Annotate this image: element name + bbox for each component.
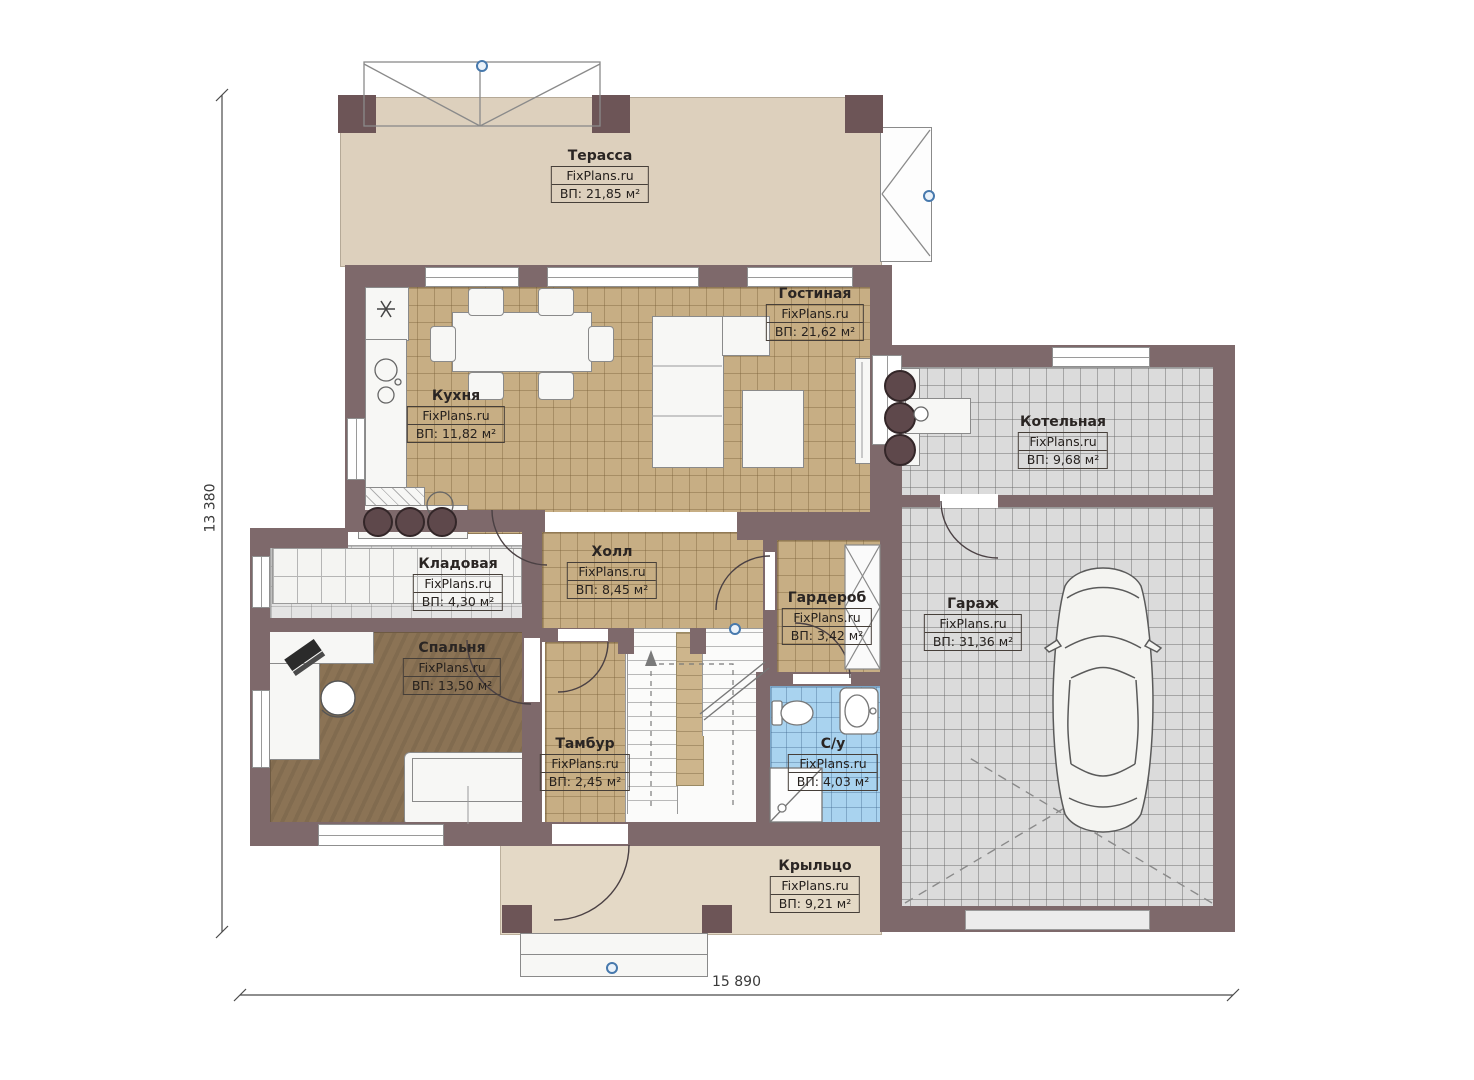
wall xyxy=(1213,367,1235,930)
window xyxy=(547,267,699,287)
room-area: ВП: 8,45 м² xyxy=(568,581,656,598)
dining-chair xyxy=(468,288,504,316)
garage-floor xyxy=(892,507,1215,908)
sofa xyxy=(652,316,724,468)
dimension-width: 15 890 xyxy=(712,974,761,990)
room-label-wardrobe: Гардероб FixPlans.ru ВП: 3,42 м² xyxy=(782,590,872,645)
room-label-terrace: Терасса FixPlans.ru ВП: 21,85 м² xyxy=(551,148,649,203)
room-brand: FixPlans.ru xyxy=(552,167,648,185)
room-area: ВП: 4,03 м² xyxy=(789,773,877,790)
dining-chair xyxy=(538,288,574,316)
dining-chair xyxy=(430,326,456,362)
room-info-box: FixPlans.ru ВП: 2,45 м² xyxy=(540,754,630,791)
room-brand: FixPlans.ru xyxy=(767,305,863,323)
wall xyxy=(880,532,902,906)
sofa-arm xyxy=(722,316,770,356)
room-label-kitchen: Кухня FixPlans.ru ВП: 11,82 м² xyxy=(407,388,505,443)
axis-marker xyxy=(729,623,741,635)
room-area: ВП: 2,45 м² xyxy=(541,773,629,790)
fridge xyxy=(365,287,409,341)
room-area: ВП: 21,85 м² xyxy=(552,185,648,202)
room-name: Спальня xyxy=(403,640,501,656)
dimension-height: 13 380 xyxy=(203,484,219,533)
room-name: Холл xyxy=(567,544,657,560)
room-label-storage: Кладовая FixPlans.ru ВП: 4,30 м² xyxy=(413,556,503,611)
room-area: ВП: 3,42 м² xyxy=(783,627,871,644)
wall-stub xyxy=(618,628,634,654)
room-area: ВП: 9,21 м² xyxy=(771,895,859,912)
room-info-box: FixPlans.ru ВП: 31,36 м² xyxy=(924,614,1022,651)
room-label-hall: Холл FixPlans.ru ВП: 8,45 м² xyxy=(567,544,657,599)
room-info-box: FixPlans.ru ВП: 13,50 м² xyxy=(403,658,501,695)
coffee-table xyxy=(742,390,804,468)
wall xyxy=(345,287,365,532)
desk-return xyxy=(262,628,374,664)
room-name: Терасса xyxy=(551,148,649,164)
window xyxy=(425,267,519,287)
door-gap xyxy=(558,629,608,641)
room-area: ВП: 21,62 м² xyxy=(767,323,863,340)
wall xyxy=(345,510,545,532)
wall xyxy=(870,287,892,345)
room-label-porch: Крыльцо FixPlans.ru ВП: 9,21 м² xyxy=(770,858,860,913)
room-info-box: FixPlans.ru ВП: 21,85 м² xyxy=(551,166,649,203)
room-label-vestibule: Тамбур FixPlans.ru ВП: 2,45 м² xyxy=(540,736,630,791)
room-info-box: FixPlans.ru ВП: 9,68 м² xyxy=(1018,432,1108,469)
garage-door xyxy=(965,910,1150,930)
room-name: Кухня xyxy=(407,388,505,404)
room-info-box: FixPlans.ru ВП: 8,45 м² xyxy=(567,562,657,599)
room-brand: FixPlans.ru xyxy=(783,609,871,627)
room-info-box: FixPlans.ru ВП: 4,03 м² xyxy=(788,754,878,791)
room-label-boiler: Котельная FixPlans.ru ВП: 9,68 м² xyxy=(1018,414,1108,469)
door-leaf xyxy=(872,355,902,445)
room-brand: FixPlans.ru xyxy=(1019,433,1107,451)
dining-table xyxy=(452,312,592,372)
window xyxy=(1052,347,1150,367)
room-name: Гараж xyxy=(924,596,1022,612)
window xyxy=(318,824,444,846)
room-info-box: FixPlans.ru ВП: 4,30 м² xyxy=(413,574,503,611)
room-label-bathroom: С/у FixPlans.ru ВП: 4,03 м² xyxy=(788,736,878,791)
bedroom-sofa-seat xyxy=(412,758,526,802)
terrace-pillar xyxy=(592,95,630,133)
wall xyxy=(270,618,522,632)
room-area: ВП: 4,30 м² xyxy=(414,593,502,610)
room-brand: FixPlans.ru xyxy=(408,407,504,425)
stair-stringer xyxy=(676,632,704,786)
wall-stub xyxy=(690,628,706,654)
porch-step xyxy=(520,933,708,956)
room-name: Кладовая xyxy=(413,556,503,572)
room-brand: FixPlans.ru xyxy=(541,755,629,773)
window xyxy=(252,556,270,608)
axis-marker xyxy=(476,60,488,72)
room-brand: FixPlans.ru xyxy=(789,755,877,773)
room-label-living: Гостиная FixPlans.ru ВП: 21,62 м² xyxy=(766,286,864,341)
porch-pillar xyxy=(702,905,732,933)
door-gap xyxy=(793,674,851,684)
wall xyxy=(756,672,770,822)
wall xyxy=(737,512,880,540)
window xyxy=(252,690,270,768)
room-brand: FixPlans.ru xyxy=(414,575,502,593)
room-area: ВП: 13,50 м² xyxy=(404,677,500,694)
terrace-pillar xyxy=(338,95,376,133)
kitchen-counter xyxy=(365,339,407,489)
window xyxy=(747,267,853,287)
window xyxy=(347,418,365,480)
room-label-bedroom: Спальня FixPlans.ru ВП: 13,50 м² xyxy=(403,640,501,695)
room-name: Котельная xyxy=(1018,414,1108,430)
room-info-box: FixPlans.ru ВП: 3,42 м² xyxy=(782,608,872,645)
room-area: ВП: 9,68 м² xyxy=(1019,451,1107,468)
terrace-pillar xyxy=(845,95,883,133)
room-name: Гостиная xyxy=(766,286,864,302)
room-info-box: FixPlans.ru ВП: 11,82 м² xyxy=(407,406,505,443)
door-gap xyxy=(524,638,540,702)
boiler-unit xyxy=(905,398,971,434)
room-area: ВП: 31,36 м² xyxy=(925,633,1021,650)
stair-flight-left xyxy=(627,632,678,814)
room-brand: FixPlans.ru xyxy=(568,563,656,581)
room-info-box: FixPlans.ru ВП: 9,21 м² xyxy=(770,876,860,913)
room-name: Крыльцо xyxy=(770,858,860,874)
porch-pillar xyxy=(502,905,532,933)
room-info-box: FixPlans.ru ВП: 21,62 м² xyxy=(766,304,864,341)
dining-chair xyxy=(588,326,614,362)
door-gap xyxy=(940,494,998,508)
axis-marker xyxy=(923,190,935,202)
room-brand: FixPlans.ru xyxy=(771,877,859,895)
floor-plan: Терасса FixPlans.ru ВП: 21,85 м² Гостина… xyxy=(0,0,1474,1080)
room-label-garage: Гараж FixPlans.ru ВП: 31,36 м² xyxy=(924,596,1022,651)
room-brand: FixPlans.ru xyxy=(925,615,1021,633)
room-brand: FixPlans.ru xyxy=(404,659,500,677)
door-gap xyxy=(765,552,775,610)
dining-chair xyxy=(538,372,574,400)
room-name: Гардероб xyxy=(782,590,872,606)
opening xyxy=(545,512,737,532)
room-name: С/у xyxy=(788,736,878,752)
room-name: Тамбур xyxy=(540,736,630,752)
room-area: ВП: 11,82 м² xyxy=(408,425,504,442)
front-door-gap xyxy=(552,824,628,844)
vestibule-floor xyxy=(545,642,627,824)
axis-marker xyxy=(606,962,618,974)
